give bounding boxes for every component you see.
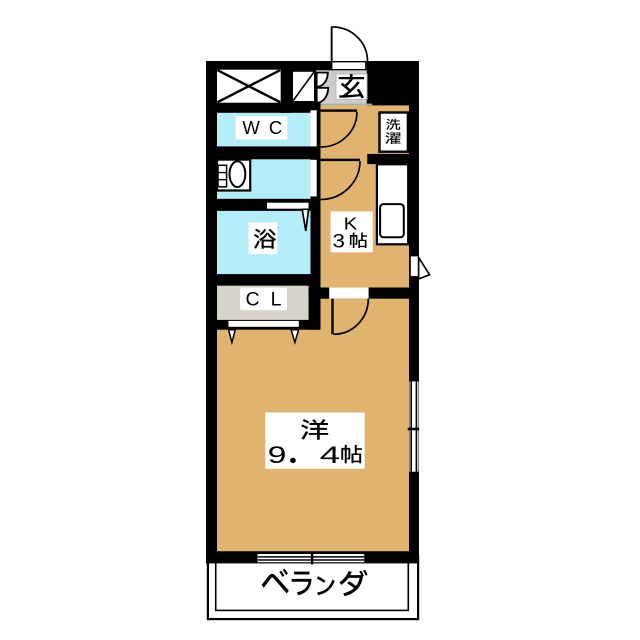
svg-text:4: 4: [320, 441, 340, 468]
svg-text:C: C: [269, 117, 282, 138]
svg-text:L: L: [271, 289, 282, 311]
svg-text:C: C: [246, 289, 260, 311]
svg-text:W: W: [242, 117, 260, 138]
svg-text:9: 9: [268, 442, 287, 469]
svg-text:K: K: [344, 215, 358, 234]
svg-text:3: 3: [332, 231, 344, 252]
